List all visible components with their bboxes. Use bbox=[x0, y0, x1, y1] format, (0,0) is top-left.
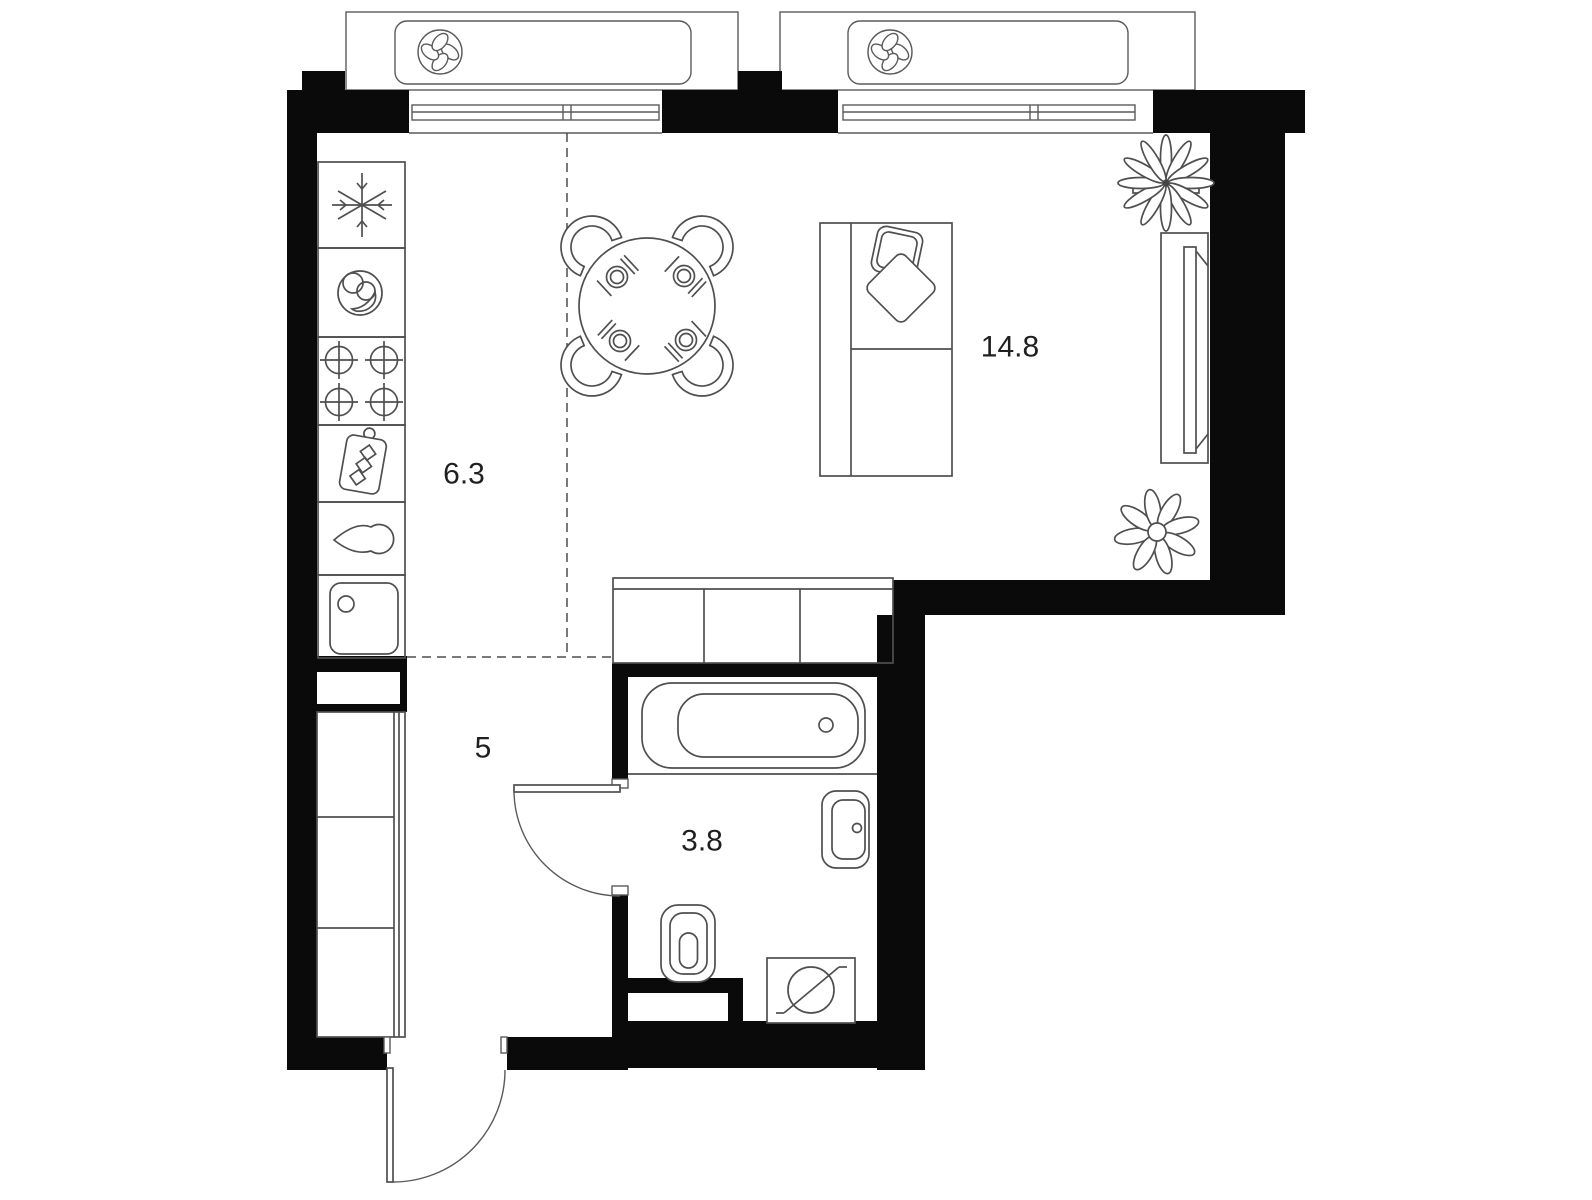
room-label-bathroom: 3.8 bbox=[681, 825, 723, 858]
floor-plan: 6.3 14.8 5 3.8 bbox=[0, 0, 1592, 1200]
water-drop-icon bbox=[334, 525, 394, 554]
kitchen-sink-icon bbox=[330, 583, 398, 654]
snowflake-icon bbox=[332, 173, 392, 237]
bathroom-door bbox=[514, 779, 628, 896]
leaf-plant-icon bbox=[1113, 488, 1200, 575]
room-label-hallway: 5 bbox=[475, 732, 492, 765]
fan-icon bbox=[418, 30, 462, 74]
wardrobe-icon bbox=[317, 712, 405, 1037]
plate-icon bbox=[338, 271, 382, 315]
entrance-door bbox=[384, 1037, 507, 1182]
toilet-icon bbox=[661, 905, 715, 982]
walls bbox=[287, 71, 1305, 1070]
kitchen-counter bbox=[613, 578, 893, 663]
fan-icon bbox=[868, 30, 912, 74]
room-label-living-room: 14.8 bbox=[981, 331, 1039, 364]
room-label-kitchen: 6.3 bbox=[443, 458, 485, 491]
cutting-board-icon bbox=[338, 425, 389, 495]
tv-stand-icon bbox=[1161, 233, 1208, 463]
floor-plan-drawing: 6.3 14.8 5 3.8 bbox=[0, 0, 1592, 1200]
washbasin-icon bbox=[822, 791, 869, 868]
dining-table-icon bbox=[579, 238, 715, 374]
vent-unit-right bbox=[780, 12, 1195, 90]
dining-set bbox=[548, 203, 746, 409]
stove-burners-icon bbox=[320, 341, 403, 421]
vent-unit-left bbox=[346, 12, 738, 90]
window-left bbox=[409, 105, 662, 133]
washing-machine-icon bbox=[767, 958, 855, 1023]
window-right bbox=[838, 105, 1153, 133]
bathtub-icon bbox=[628, 683, 877, 774]
flower-plant-icon bbox=[1118, 135, 1214, 231]
kitchen-column bbox=[318, 162, 405, 658]
sofa-icon bbox=[820, 223, 952, 476]
